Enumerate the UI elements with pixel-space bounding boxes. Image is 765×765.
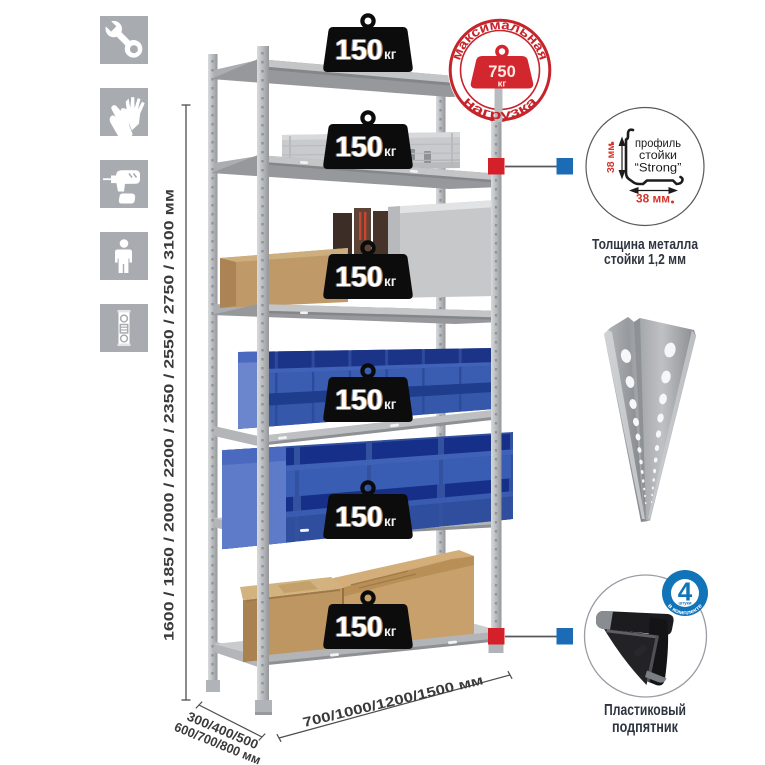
- svg-text:профиль: профиль: [635, 138, 681, 150]
- svg-text:1600 / 1850 / 2000 / 2200 / 23: 1600 / 1850 / 2000 / 2200 / 2350 / 2550 …: [161, 189, 177, 641]
- svg-text:700/1000/1200/1500 мм: 700/1000/1200/1500 мм: [301, 672, 484, 730]
- svg-text:стойки 1,2 мм: стойки 1,2 мм: [604, 252, 686, 268]
- svg-text:кг: кг: [498, 79, 507, 90]
- svg-text:штуки: штуки: [679, 601, 692, 606]
- svg-text:38 мм: 38 мм: [636, 194, 670, 206]
- svg-text:подпятник: подпятник: [612, 719, 678, 736]
- svg-text:стойки: стойки: [639, 150, 677, 162]
- svg-text:“Strong”: “Strong”: [635, 163, 682, 175]
- svg-text:Толщина металла: Толщина металла: [592, 237, 699, 253]
- svg-text:38 мм: 38 мм: [605, 143, 617, 173]
- svg-text:Пластиковый: Пластиковый: [604, 702, 686, 719]
